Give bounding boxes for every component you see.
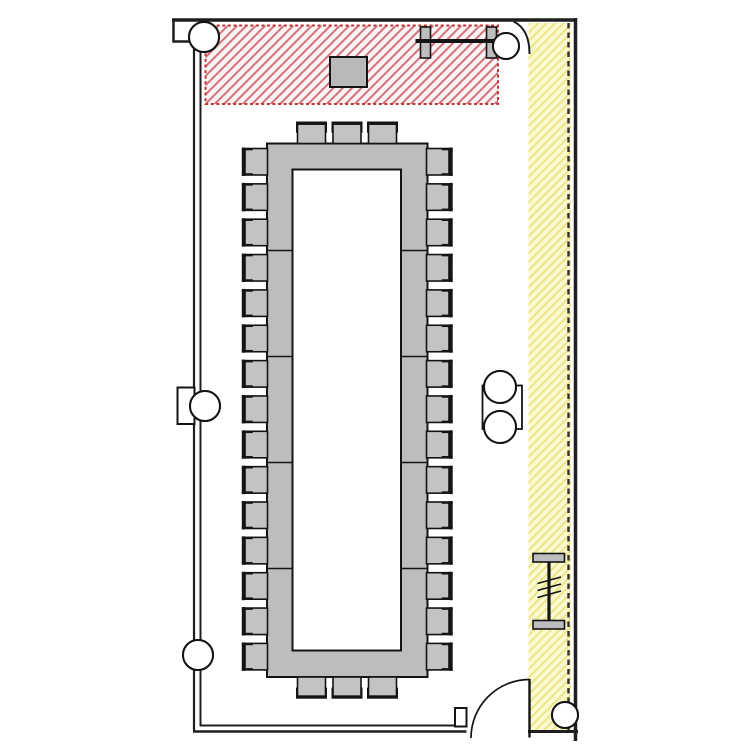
column-marker-icon: [484, 411, 516, 443]
floor-plan-canvas: [0, 0, 750, 750]
chair: [242, 289, 268, 318]
chair: [367, 122, 398, 144]
chair: [427, 466, 453, 495]
chair: [242, 395, 268, 424]
chair: [242, 254, 268, 282]
chair: [332, 122, 363, 144]
chair: [242, 607, 268, 636]
chair: [332, 677, 363, 699]
chair: [427, 324, 453, 353]
chair: [242, 218, 268, 247]
podium: [330, 57, 367, 87]
chair: [427, 218, 453, 247]
column-marker-icon: [493, 33, 519, 59]
door-jamb: [455, 708, 467, 727]
chair: [427, 430, 453, 459]
chair: [427, 183, 453, 212]
chair: [242, 324, 268, 353]
door: [471, 679, 530, 738]
chair: [242, 466, 268, 495]
column-marker-icon: [183, 640, 213, 670]
chair: [242, 430, 268, 459]
chair: [296, 677, 327, 699]
chair: [242, 360, 268, 389]
chair: [427, 536, 453, 565]
floor-plan-drawing: [0, 0, 750, 750]
column-marker-icon: [552, 702, 578, 728]
chair: [427, 254, 453, 282]
chair: [242, 572, 268, 601]
chair: [242, 148, 268, 177]
chair: [427, 360, 453, 389]
chair: [296, 122, 327, 144]
chair: [427, 395, 453, 424]
chair: [427, 642, 453, 671]
column-marker-icon: [484, 371, 516, 403]
chair: [242, 642, 268, 671]
chair: [427, 148, 453, 177]
chair: [427, 607, 453, 636]
chair: [427, 289, 453, 318]
door-swing-arc: [471, 680, 530, 739]
chair: [367, 677, 398, 699]
chair: [242, 501, 268, 530]
chair: [427, 501, 453, 530]
chair: [427, 572, 453, 601]
column-marker-icon: [190, 391, 220, 421]
chair: [242, 536, 268, 565]
conference-table-opening: [293, 170, 402, 651]
chair: [242, 183, 268, 212]
column-marker-icon: [189, 22, 219, 52]
